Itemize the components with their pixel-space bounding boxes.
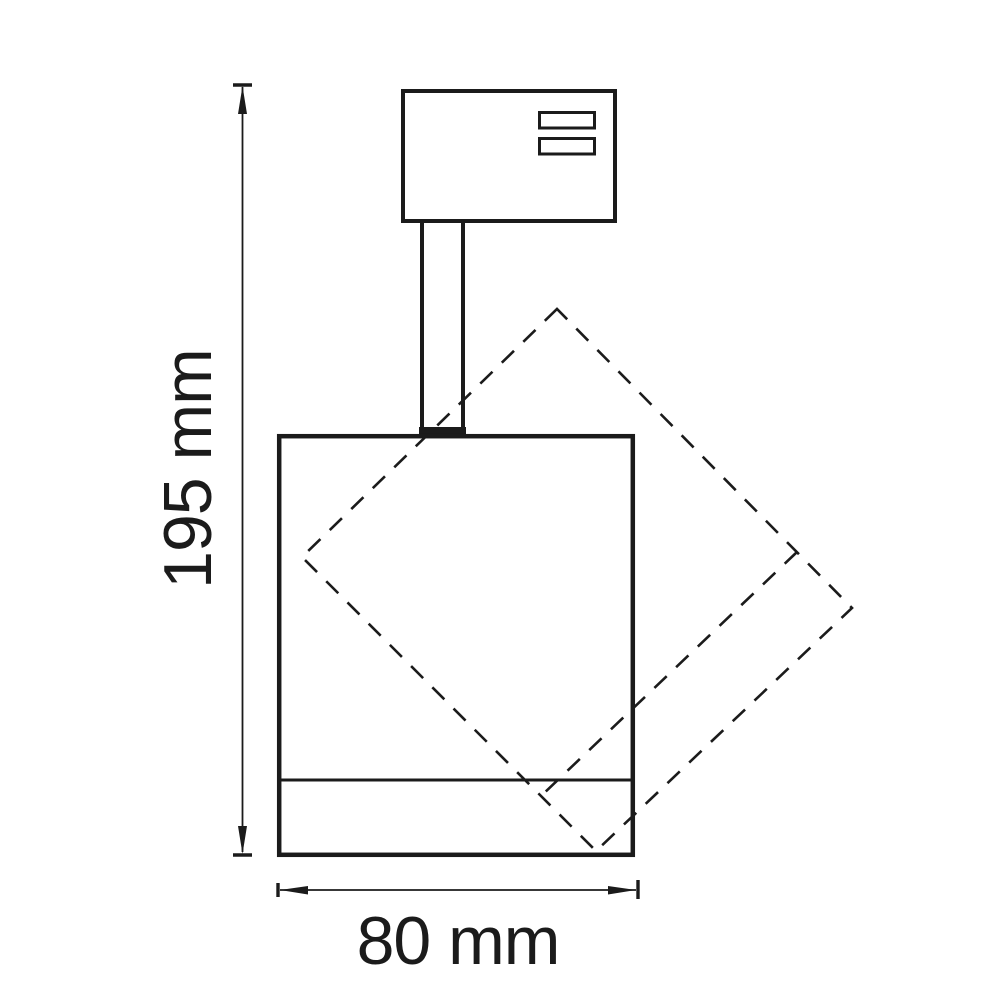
technical-drawing-canvas: 195 mm 80 mm [0,0,1000,1000]
adapter-terminal-slot-top [540,113,595,129]
width-dimension-label: 80 mm [357,903,560,979]
height-dimension-label: 195 mm [150,349,226,589]
track-adapter-box [403,91,615,221]
adapter-terminal-slot-bottom [540,139,595,155]
